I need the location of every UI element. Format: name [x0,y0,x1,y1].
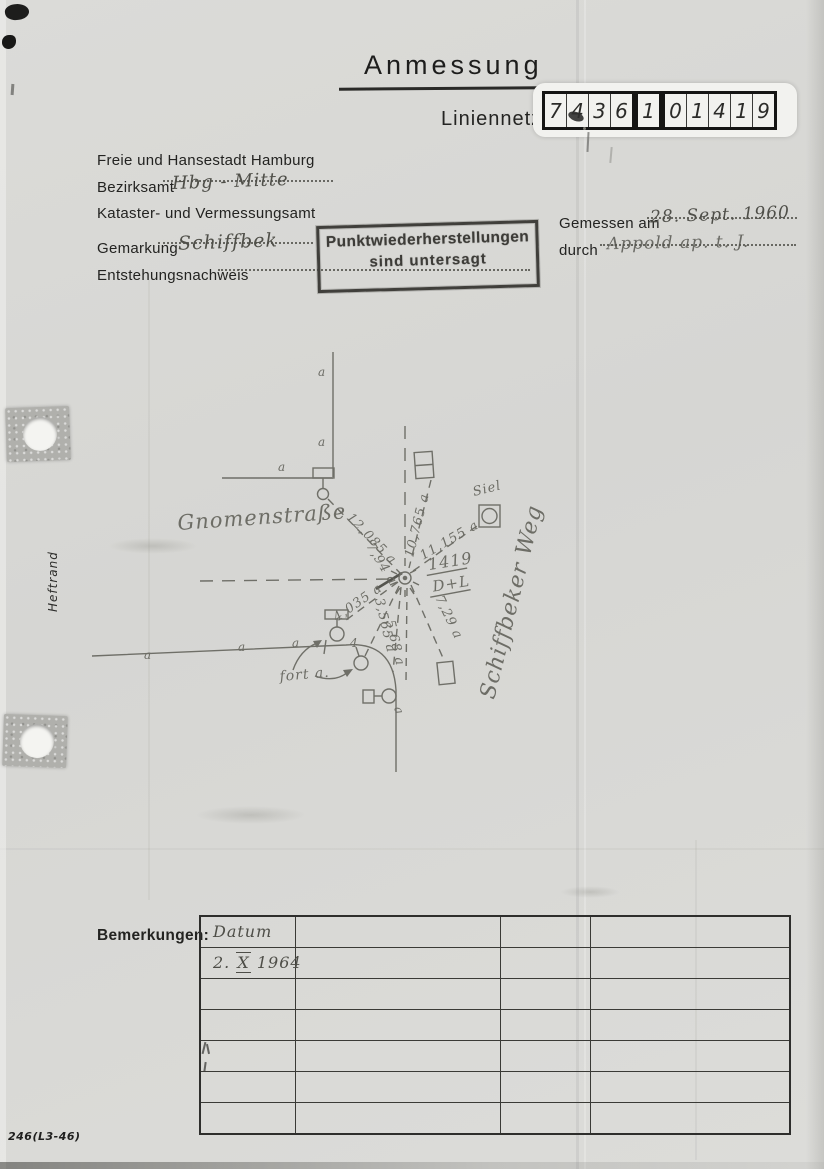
table-cell [500,1072,590,1103]
dashed-line-horizontal [200,579,394,581]
table-row [200,1103,790,1135]
grid-digit-cell: 1 [731,94,753,127]
digit-group: 0 1 4 1 9 [662,91,777,130]
date-month-roman: X [236,952,250,973]
table-cell [500,1010,590,1041]
gemessen-entry: 28. Sept. 1960 [650,203,791,228]
table-cell [590,948,790,979]
table-row [200,1041,790,1072]
table-cell [500,1103,590,1135]
scanned-form-page: Heftrand Anmessung Liniennetz 7 4 3 6 1 … [0,0,824,1169]
table-cell [500,948,590,979]
boundary-mark: a [278,460,286,474]
scan-edge [0,0,6,1169]
table-cell [590,1103,790,1135]
grid-digit-cell: 9 [753,94,774,127]
point-number-grid: 7 4 3 6 1 0 1 4 1 9 [542,91,777,130]
stamp-line-2: sind untersagt [320,249,536,272]
date-entry: 2. X 1964 [201,953,302,972]
date-part: 2. [213,953,230,972]
boundary-mark: a [318,435,326,449]
scan-edge [806,0,824,1169]
point-type-text: D+L [430,572,471,596]
table-row: 2. X 1964 [200,948,790,979]
agency-line-2: Kataster- und Vermessungsamt [97,205,316,222]
stamp-line-1: Punktwiederherstellungen [319,228,535,252]
boundary-mark: a [391,705,407,717]
agency-line-1: Freie und Hansestadt Hamburg [97,152,315,169]
hole-reinforcement-patch [2,714,68,768]
boundary-mark: a [238,640,246,654]
paper-crease [0,848,824,850]
grid-digit-cell: 7 [545,94,567,127]
gemarkung-entry: Schiffbek [178,229,279,254]
remarks-table: Datum 2. X 1964 [199,915,791,1135]
ink-blot [2,35,16,49]
point-circle [354,656,368,670]
survey-sketch: Siel 1419 D+L [80,330,560,790]
boundary-mark: a [318,365,326,379]
prohibition-stamp: Punktwiederherstellungen sind untersagt [316,220,540,293]
point-tie [324,640,326,654]
table-cell [295,1041,500,1072]
table-cell [590,1010,790,1041]
pencil-tick [11,84,15,95]
ink-blot [4,2,30,21]
margin-label: Heftrand [46,551,60,612]
point-circle [318,489,329,500]
table-cell [590,916,790,948]
date-part: 1964 [257,953,302,972]
form-code: 246(L3-46) [8,1130,81,1143]
measure-ray [406,588,407,682]
table-cell [295,916,500,948]
durch-entry: Appold ap. t. J. [607,232,750,254]
box-symbol [437,661,455,685]
hole-reinforcement-patch [5,406,71,462]
table-row: Datum [200,916,790,948]
post-symbol [313,468,334,478]
grid-digit-cell: 6 [611,94,632,127]
grid-digit-cell: 4 [709,94,731,127]
bezirksamt-entry: Hbg - Mitte [172,169,289,194]
boundary-mark: a [144,648,152,662]
grid-digit-cell: 0 [665,94,687,127]
table-cell [200,1103,295,1135]
arrowhead [343,669,353,677]
table-cell [590,979,790,1010]
boundary-mark: 4 [349,636,359,650]
table-cell [295,1103,500,1135]
fort-a-label: fort a. [278,665,330,685]
street-name-gnomenstrasse: Gnomenstraße [177,499,347,535]
pen-dot [583,127,586,130]
digit-group: 7 4 3 6 [542,91,635,130]
grid-digit-cell: 3 [589,94,611,127]
pencil-smudge [560,886,620,898]
table-row [200,979,790,1010]
table-cell [590,1041,790,1072]
table-cell [200,1010,295,1041]
siel-symbol [479,505,500,527]
double-box-symbol [414,451,434,478]
pen-stroke [586,132,589,152]
page-title: Anmessung [364,50,543,81]
pencil-stroke [609,147,612,163]
table-cell [500,1041,590,1072]
gemessen-am-label: Gemessen am [559,215,660,232]
durch-label: durch [559,242,598,259]
title-underline [339,86,541,90]
point-number-sticker: 7 4 3 6 1 0 1 4 1 9 [533,83,797,137]
table-cell [295,1010,500,1041]
table-cell [295,948,500,979]
table-cell [295,1072,500,1103]
punched-hole [22,416,57,451]
grid-digit-cell: 1 [638,94,659,127]
siel-label: Siel [471,478,503,500]
datum-header: Datum [201,922,272,941]
digit-group: 1 [635,91,662,130]
street-name-schiffbeker-weg: Schiffbeker Weg [476,503,548,702]
scan-edge [0,1162,824,1169]
pencil-smudge [196,806,306,824]
table-cell [200,1041,295,1072]
table-cell [500,979,590,1010]
table-row [200,1072,790,1103]
street-line-curved [92,645,396,772]
bemerkungen-label: Bemerkungen: [97,927,209,945]
table-cell: 2. X 1964 [200,948,295,979]
table-cell [590,1072,790,1103]
lamp-symbol [363,689,396,703]
page-subtitle: Liniennetz [441,108,542,131]
table-cell [200,1072,295,1103]
punched-hole [19,723,54,758]
table-cell [500,916,590,948]
grid-digit-cell: 1 [687,94,709,127]
table-cell [200,979,295,1010]
table-row [200,1010,790,1041]
measurement-label: 7,29 a [431,593,465,642]
boundary-mark: a [292,636,300,650]
table-cell: Datum [200,916,295,948]
table-cell [295,979,500,1010]
